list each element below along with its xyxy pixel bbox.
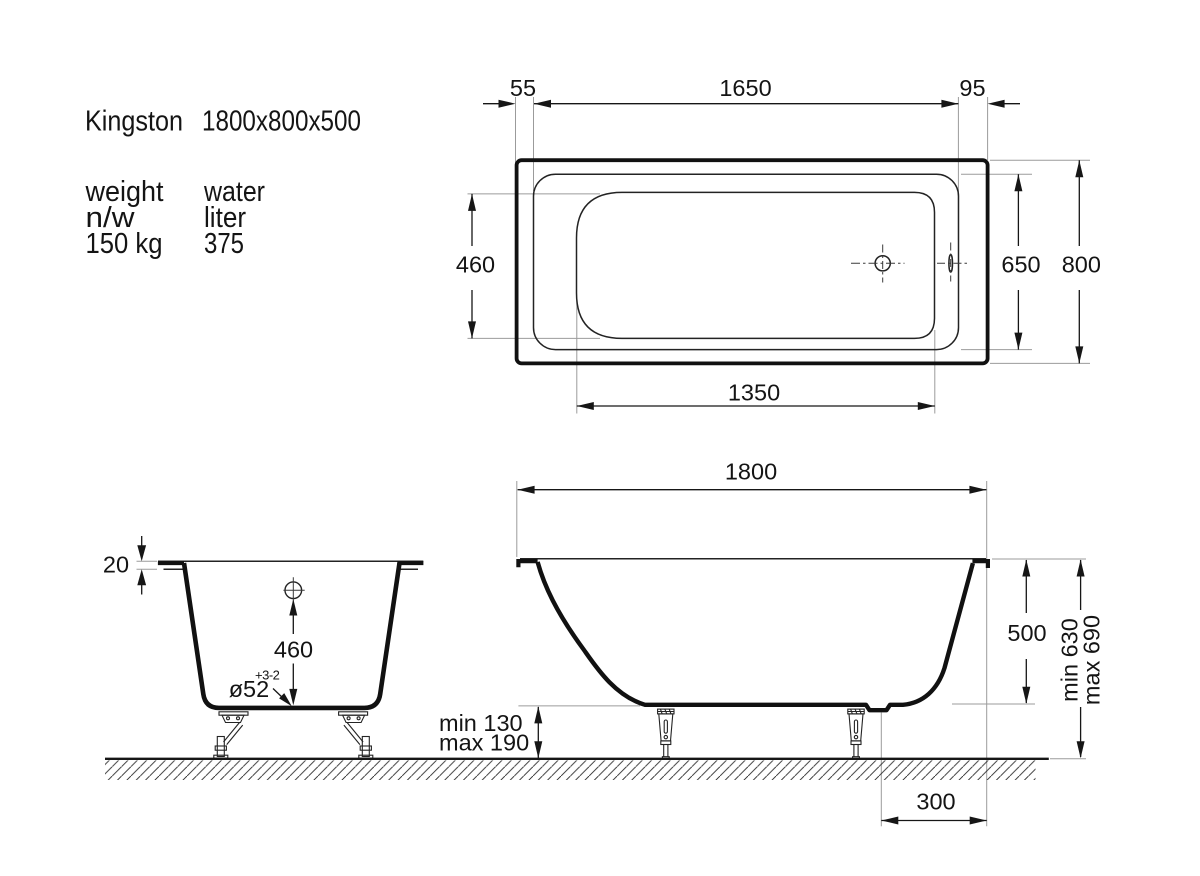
svg-text:460: 460	[274, 637, 313, 663]
svg-text:150 kg: 150 kg	[86, 228, 163, 260]
svg-text:1800: 1800	[725, 458, 777, 484]
svg-text:Kingston: Kingston	[85, 106, 183, 138]
svg-text:460: 460	[456, 252, 495, 278]
svg-text:55: 55	[510, 75, 536, 101]
svg-text:375: 375	[204, 228, 244, 260]
svg-text:1800x800x500: 1800x800x500	[202, 106, 361, 138]
svg-text:max 190: max 190	[439, 729, 529, 755]
svg-text:95: 95	[959, 75, 985, 101]
svg-text:1650: 1650	[719, 75, 771, 101]
svg-text:800: 800	[1062, 252, 1101, 278]
svg-text:650: 650	[1001, 252, 1040, 278]
svg-text:+3-2: +3-2	[255, 668, 280, 683]
svg-text:500: 500	[1007, 620, 1046, 646]
svg-text:1350: 1350	[728, 379, 780, 405]
svg-text:max 690: max 690	[1079, 615, 1105, 705]
svg-text:20: 20	[103, 552, 129, 578]
svg-text:300: 300	[916, 789, 955, 815]
